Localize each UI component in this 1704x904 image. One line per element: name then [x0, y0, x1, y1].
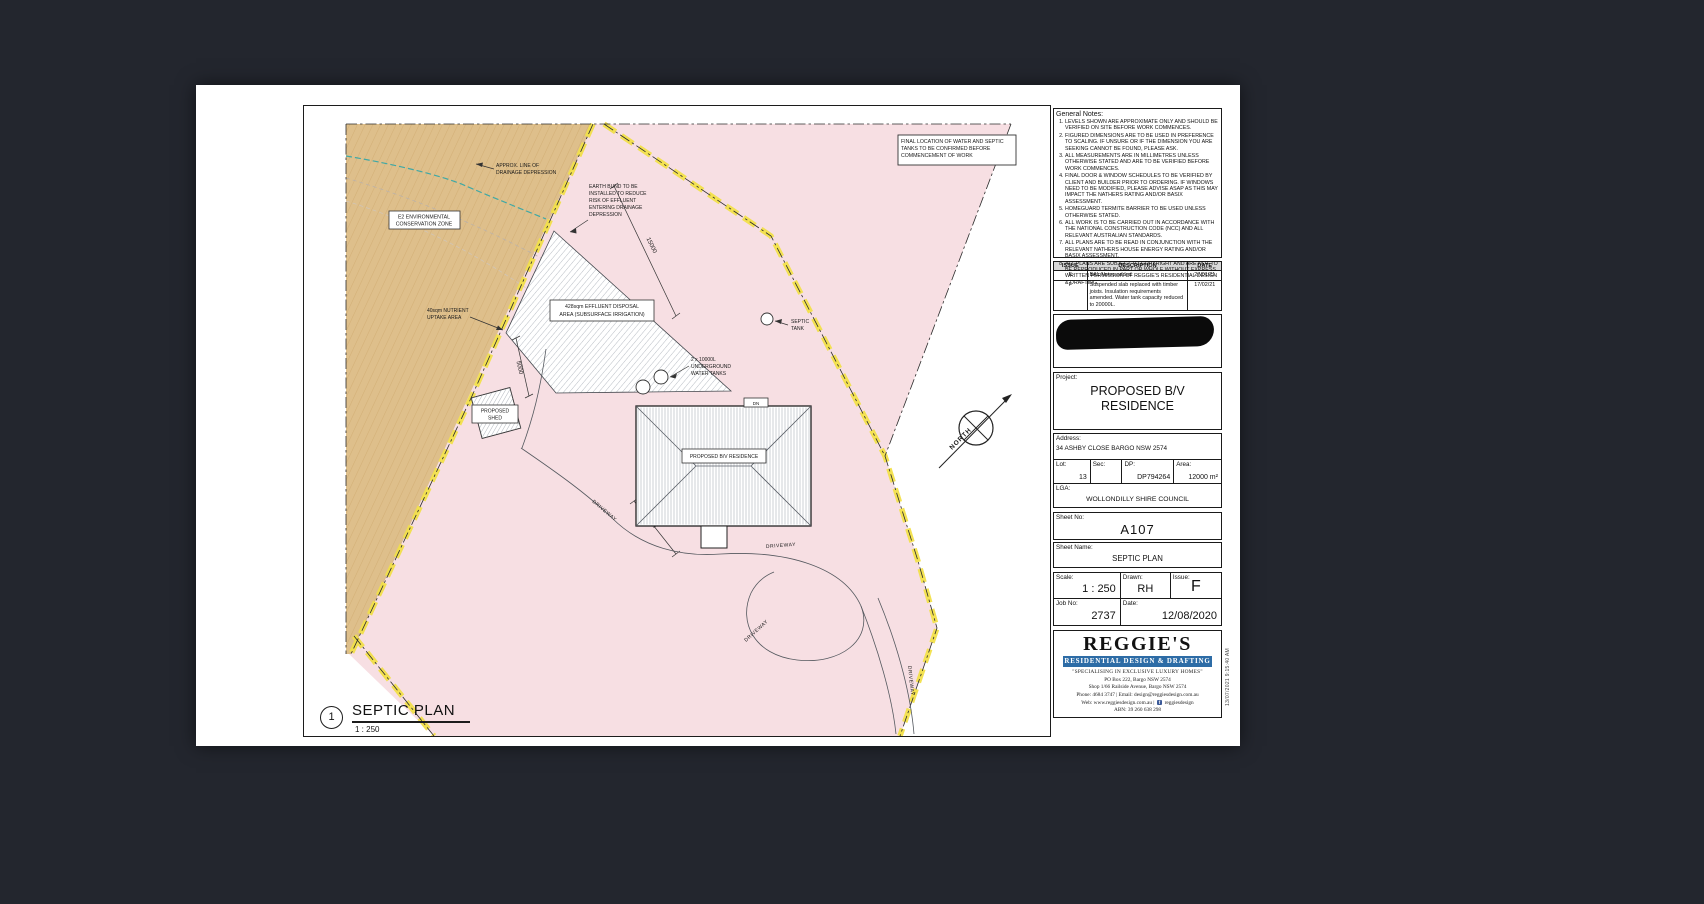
sec-cell: Sec:	[1091, 460, 1123, 483]
brand-web: Web: www.reggiesdesign.com.au |	[1081, 700, 1154, 706]
dp-cell: DP: DP794264	[1122, 460, 1174, 483]
lga-value: WOLLONDILLY SHIRE COUNCIL	[1054, 496, 1221, 503]
final-location-line3: COMMENCEMENT OF WORK	[901, 153, 973, 159]
general-note: FINAL DOOR & WINDOW SCHEDULES TO BE VERI…	[1065, 173, 1219, 205]
address-label: Address:	[1054, 434, 1221, 442]
general-notes-box: General Notes: LEVELS SHOWN ARE APPROXIM…	[1053, 108, 1222, 258]
water-tanks-label-line2: UNDERGROUND	[691, 364, 731, 370]
issue-value: F	[1171, 578, 1221, 596]
area-label: Area:	[1174, 460, 1221, 468]
sheet-no-box: Sheet No: A107	[1053, 512, 1222, 540]
general-note: ALL PLANS ARE TO BE READ IN CONJUNCTION …	[1065, 240, 1219, 259]
sheet-name-value: SEPTIC PLAN	[1054, 554, 1221, 563]
scale-cell: Scale: 1 : 250	[1054, 573, 1121, 598]
general-note: HOMEGUARD TERMITE BARRIER TO BE USED UNL…	[1065, 206, 1219, 219]
drawn-cell: Drawn: RH	[1121, 573, 1171, 598]
site-plan-svg: 15000 5000 5000 DRIVEWAY DRIVEWAY DRIVEW…	[304, 106, 1050, 736]
shed-label-line1: PROPOSED	[481, 409, 510, 415]
dp-label: DP:	[1122, 460, 1173, 468]
dn-label: DN	[753, 401, 760, 406]
facebook-icon: f	[1157, 700, 1163, 706]
nutrient-line2: UPTAKE AREA	[427, 315, 462, 321]
final-location-note: FINAL LOCATION OF WATER AND SEPTIC TANKS…	[898, 135, 1016, 165]
project-label: Project:	[1054, 373, 1221, 381]
lot-value: 13	[1079, 474, 1087, 481]
brand-box: REGGIE'S RESIDENTIAL DESIGN & DRAFTING "…	[1053, 630, 1222, 718]
septic-tank-label-line1: SEPTIC	[791, 319, 809, 325]
job-no-label: Job No:	[1054, 599, 1120, 607]
proposed-residence: DN PROPOSED B/V RESIDENCE	[636, 398, 811, 548]
plan-title: SEPTIC PLAN	[352, 702, 455, 719]
effluent-line1: 428sqm EFFLUENT DISPOSAL	[565, 304, 639, 310]
general-note: FIGURED DIMENSIONS ARE TO BE USED IN PRE…	[1065, 133, 1219, 152]
lot-cell: Lot: 13	[1054, 460, 1091, 483]
general-notes-title: General Notes:	[1056, 111, 1219, 118]
water-tanks-label-line1: 2 x 10000L	[691, 357, 716, 363]
general-note: ALL PLANS ARE SUBJECT TO COPYRIGHT AND A…	[1065, 261, 1219, 286]
earth-bund-line4: ENTERING DRAINAGE	[589, 205, 643, 211]
brand-banner: RESIDENTIAL DESIGN & DRAFTING	[1063, 656, 1212, 667]
job-no-value: 2737	[1091, 610, 1115, 622]
plan-title-rule	[352, 721, 470, 723]
date-value: 12/08/2020	[1162, 610, 1217, 622]
viewer-background: { "page": { "plot_timestamp": "13/07/202…	[0, 0, 1704, 904]
water-tanks-label-line3: WATER TANKS	[691, 371, 727, 377]
scale-row: Scale: 1 : 250 Drawn: RH Issue: F	[1053, 572, 1222, 599]
project-value: PROPOSED B/V RESIDENCE	[1078, 384, 1198, 415]
drainage-label-line1: APPROX. LINE OF	[496, 163, 539, 169]
sheet-no-value: A107	[1054, 522, 1221, 537]
drainage-label-line2: DRAINAGE DEPRESSION	[496, 170, 557, 176]
sheet-name-box: Sheet Name: SEPTIC PLAN	[1053, 542, 1222, 568]
scale-label: Scale:	[1054, 573, 1120, 581]
brand-name: REGGIE'S	[1057, 634, 1218, 654]
area-value: 12000 m²	[1188, 474, 1218, 481]
address-value: 34 ASHBY CLOSE BARGO NSW 2574	[1054, 442, 1221, 452]
north-arrow: NORTH	[939, 394, 1012, 468]
shed-label-line2: SHED	[488, 416, 502, 422]
e2-zone-line1: E2 ENVIRONMENTAL	[398, 215, 450, 221]
brand-address1: PO Box 222, Bargo NSW 2574	[1057, 677, 1218, 685]
earth-bund-line1: EARTH BUND TO BE	[589, 184, 638, 190]
lot-row: Lot: 13 Sec: DP: DP794264 Area: 12000 m²	[1053, 460, 1222, 484]
sheet-name-label: Sheet Name:	[1054, 543, 1221, 551]
drawn-value: RH	[1121, 583, 1170, 595]
address-box: Address: 34 ASHBY CLOSE BARGO NSW 2574	[1053, 433, 1222, 460]
lga-box: LGA: WOLLONDILLY SHIRE COUNCIL	[1053, 484, 1222, 508]
drawn-label: Drawn:	[1121, 573, 1170, 581]
final-location-line1: FINAL LOCATION OF WATER AND SEPTIC	[901, 139, 1004, 145]
brand-contact: Phone: 4684 3747 | Email: design@reggies…	[1057, 692, 1218, 700]
scale-value: 1 : 250	[1082, 583, 1116, 595]
final-location-line2: TANKS TO BE CONFIRMED BEFORE	[901, 146, 991, 152]
general-note: LEVELS SHOWN ARE APPROXIMATE ONLY AND SH…	[1065, 119, 1219, 132]
septic-tank-label-line2: TANK	[791, 326, 805, 332]
lga-label: LGA:	[1054, 484, 1221, 492]
earth-bund-line3: RISK OF EFFLUENT	[589, 198, 636, 204]
brand-web-line: Web: www.reggiesdesign.com.au | f reggie…	[1057, 700, 1218, 708]
plot-timestamp: 13/07/2021 9:15:40 AM	[1225, 648, 1231, 706]
redaction-blob	[1056, 316, 1215, 350]
e2-zone-label: E2 ENVIRONMENTAL CONSERVATION ZONE	[389, 211, 460, 229]
lot-label: Lot:	[1054, 460, 1090, 468]
earth-bund-line2: INSTALLED TO REDUCE	[589, 191, 647, 197]
brand-abn: ABN: 39 260 638 298	[1057, 707, 1218, 715]
effluent-area-label: 428sqm EFFLUENT DISPOSAL AREA (SUBSURFAC…	[550, 300, 654, 321]
brand-facebook-handle: reggiesdesign	[1165, 700, 1194, 706]
issue-cell-box: Issue: F	[1171, 573, 1221, 598]
dp-value: DP794264	[1137, 474, 1170, 481]
general-note: ALL WORK IS TO BE CARRIED OUT IN ACCORDA…	[1065, 220, 1219, 239]
project-box: Project: PROPOSED B/V RESIDENCE	[1053, 372, 1222, 430]
e2-zone-line2: CONSERVATION ZONE	[396, 222, 453, 228]
area-cell: Area: 12000 m²	[1174, 460, 1221, 483]
redacted-box	[1053, 314, 1222, 368]
drawing-frame: 15000 5000 5000 DRIVEWAY DRIVEWAY DRIVEW…	[303, 105, 1051, 737]
title-block: General Notes: LEVELS SHOWN ARE APPROXIM…	[1053, 108, 1222, 741]
job-row: Job No: 2737 Date: 12/08/2020	[1053, 599, 1222, 626]
sec-label: Sec:	[1091, 460, 1122, 468]
north-label: NORTH	[948, 427, 973, 452]
date-label: Date:	[1121, 599, 1221, 607]
plan-number-badge: 1	[320, 706, 343, 729]
date-cell-box: Date: 12/08/2020	[1121, 599, 1221, 625]
job-no-cell: Job No: 2737	[1054, 599, 1121, 625]
brand-tagline: "SPECIALISING IN EXCLUSIVE LUXURY HOMES"	[1057, 669, 1218, 675]
general-notes-list: LEVELS SHOWN ARE APPROXIMATE ONLY AND SH…	[1056, 119, 1219, 286]
porch	[701, 526, 727, 548]
drawing-sheet: 15000 5000 5000 DRIVEWAY DRIVEWAY DRIVEW…	[196, 85, 1240, 746]
general-note: ALL MEASUREMENTS ARE IN MILLIMETRES UNLE…	[1065, 153, 1219, 172]
sheet-no-label: Sheet No:	[1054, 513, 1221, 521]
earth-bund-line5: DEPRESSION	[589, 212, 622, 218]
plan-scale: 1 : 250	[355, 725, 379, 734]
effluent-line2: AREA (SUBSURFACE IRRIGATION)	[559, 312, 644, 318]
nutrient-line1: 40sqm NUTRIENT	[427, 308, 469, 314]
brand-address2: Shop 1/66 Railside Avenue, Bargo NSW 257…	[1057, 684, 1218, 692]
residence-label: PROPOSED B/V RESIDENCE	[690, 454, 759, 460]
